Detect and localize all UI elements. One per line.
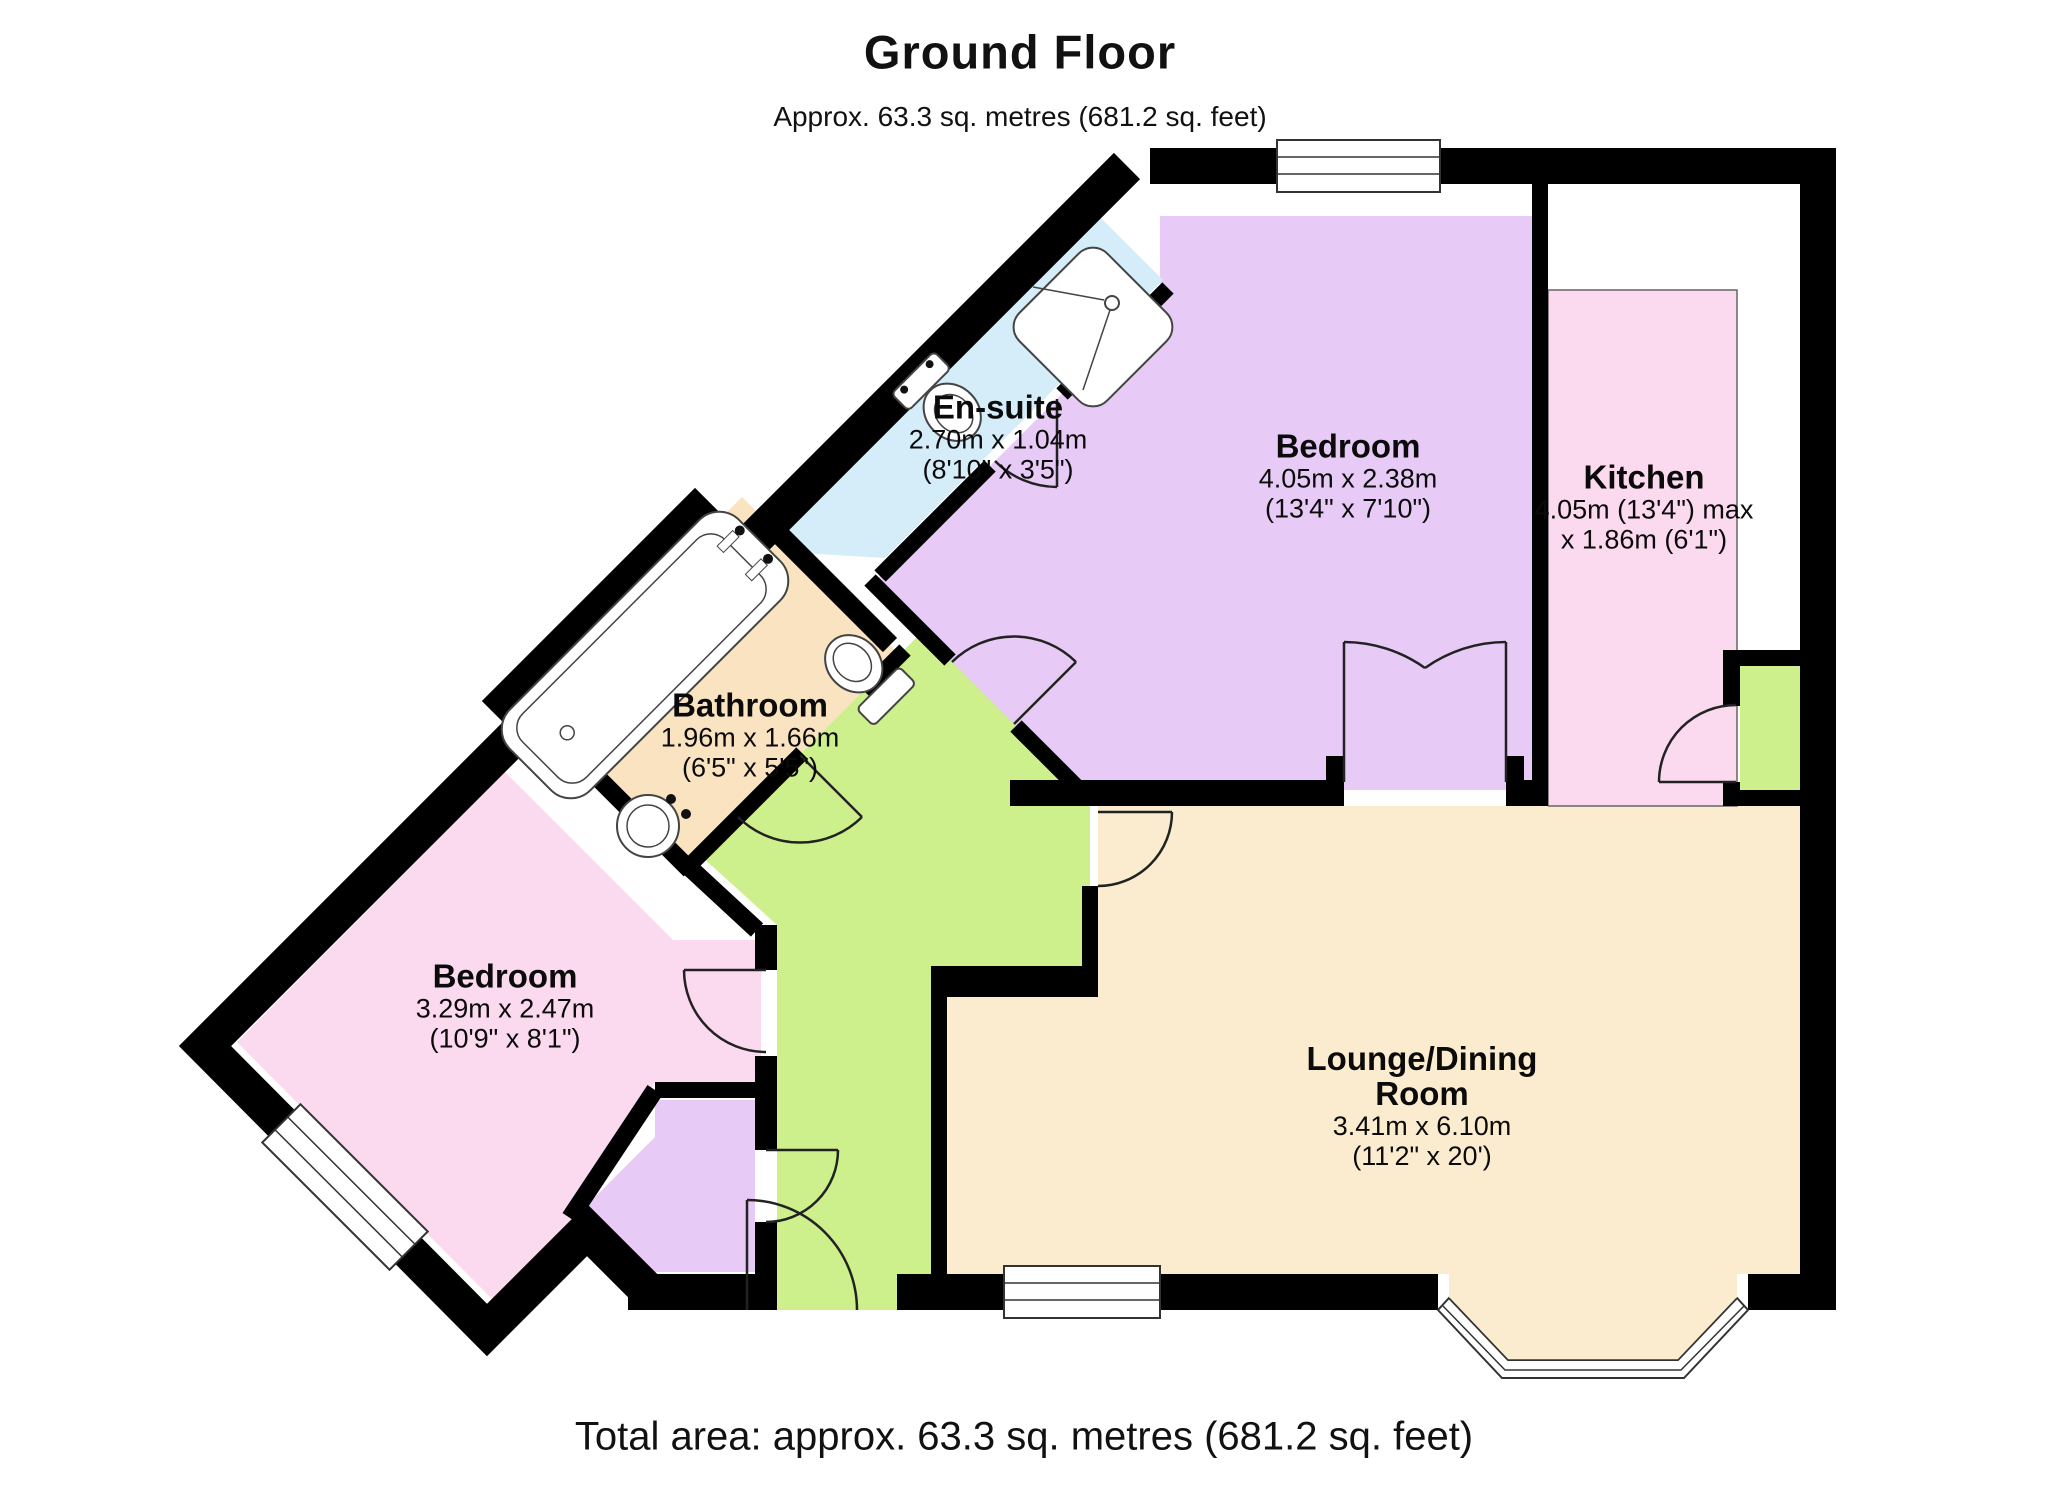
window-top: [1277, 140, 1440, 192]
room-dim-metric: 3.41m x 6.10m: [1297, 1111, 1547, 1141]
floorplan-page: { "title": { "heading": "Ground Floor", …: [0, 0, 2048, 1489]
room-name: Bedroom: [416, 959, 595, 994]
room-dim-metric: 1.96m x 1.66m: [661, 723, 840, 753]
room-dim-imperial: (11'2" x 20'): [1297, 1141, 1547, 1171]
label-bathroom: Bathroom 1.96m x 1.66m (6'5" x 5'5"): [661, 688, 840, 783]
room-name: En-suite: [909, 390, 1088, 425]
room-dim-metric: 4.05m (13'4") max: [1535, 495, 1754, 525]
label-kitchen: Kitchen 4.05m (13'4") max x 1.86m (6'1"): [1535, 460, 1754, 555]
label-bedroom-top: Bedroom 4.05m x 2.38m (13'4" x 7'10"): [1259, 429, 1438, 524]
page-title: Ground Floor: [864, 25, 1176, 80]
room-name: Bedroom: [1259, 429, 1438, 464]
room-name: Kitchen: [1535, 460, 1754, 495]
room-dim-metric: 3.29m x 2.47m: [416, 994, 595, 1024]
bay-window: [1438, 1274, 1748, 1378]
room-name: Bathroom: [661, 688, 840, 723]
room-dim-imperial: x 1.86m (6'1"): [1535, 525, 1754, 555]
floorplan-drawing: [0, 0, 2048, 1489]
total-area-text: Total area: approx. 63.3 sq. metres (681…: [575, 1415, 1473, 1460]
room-dim-imperial: (8'10" x 3'5"): [909, 455, 1088, 485]
room-name: Lounge/Dining Room: [1297, 1041, 1547, 1111]
label-ensuite: En-suite 2.70m x 1.04m (8'10" x 3'5"): [909, 390, 1088, 485]
room-dim-imperial: (10'9" x 8'1"): [416, 1024, 595, 1054]
label-bedroom-bottom: Bedroom 3.29m x 2.47m (10'9" x 8'1"): [416, 959, 595, 1054]
window-lounge-bottom: [1004, 1266, 1160, 1318]
room-dim-metric: 2.70m x 1.04m: [909, 425, 1088, 455]
page-subtitle: Approx. 63.3 sq. metres (681.2 sq. feet): [773, 101, 1266, 133]
room-dim-imperial: (6'5" x 5'5"): [661, 753, 840, 783]
label-lounge: Lounge/Dining Room 3.41m x 6.10m (11'2" …: [1297, 1041, 1547, 1171]
room-dim-metric: 4.05m x 2.38m: [1259, 464, 1438, 494]
room-entrance-porch: [1740, 666, 1800, 790]
room-dim-imperial: (13'4" x 7'10"): [1259, 494, 1438, 524]
